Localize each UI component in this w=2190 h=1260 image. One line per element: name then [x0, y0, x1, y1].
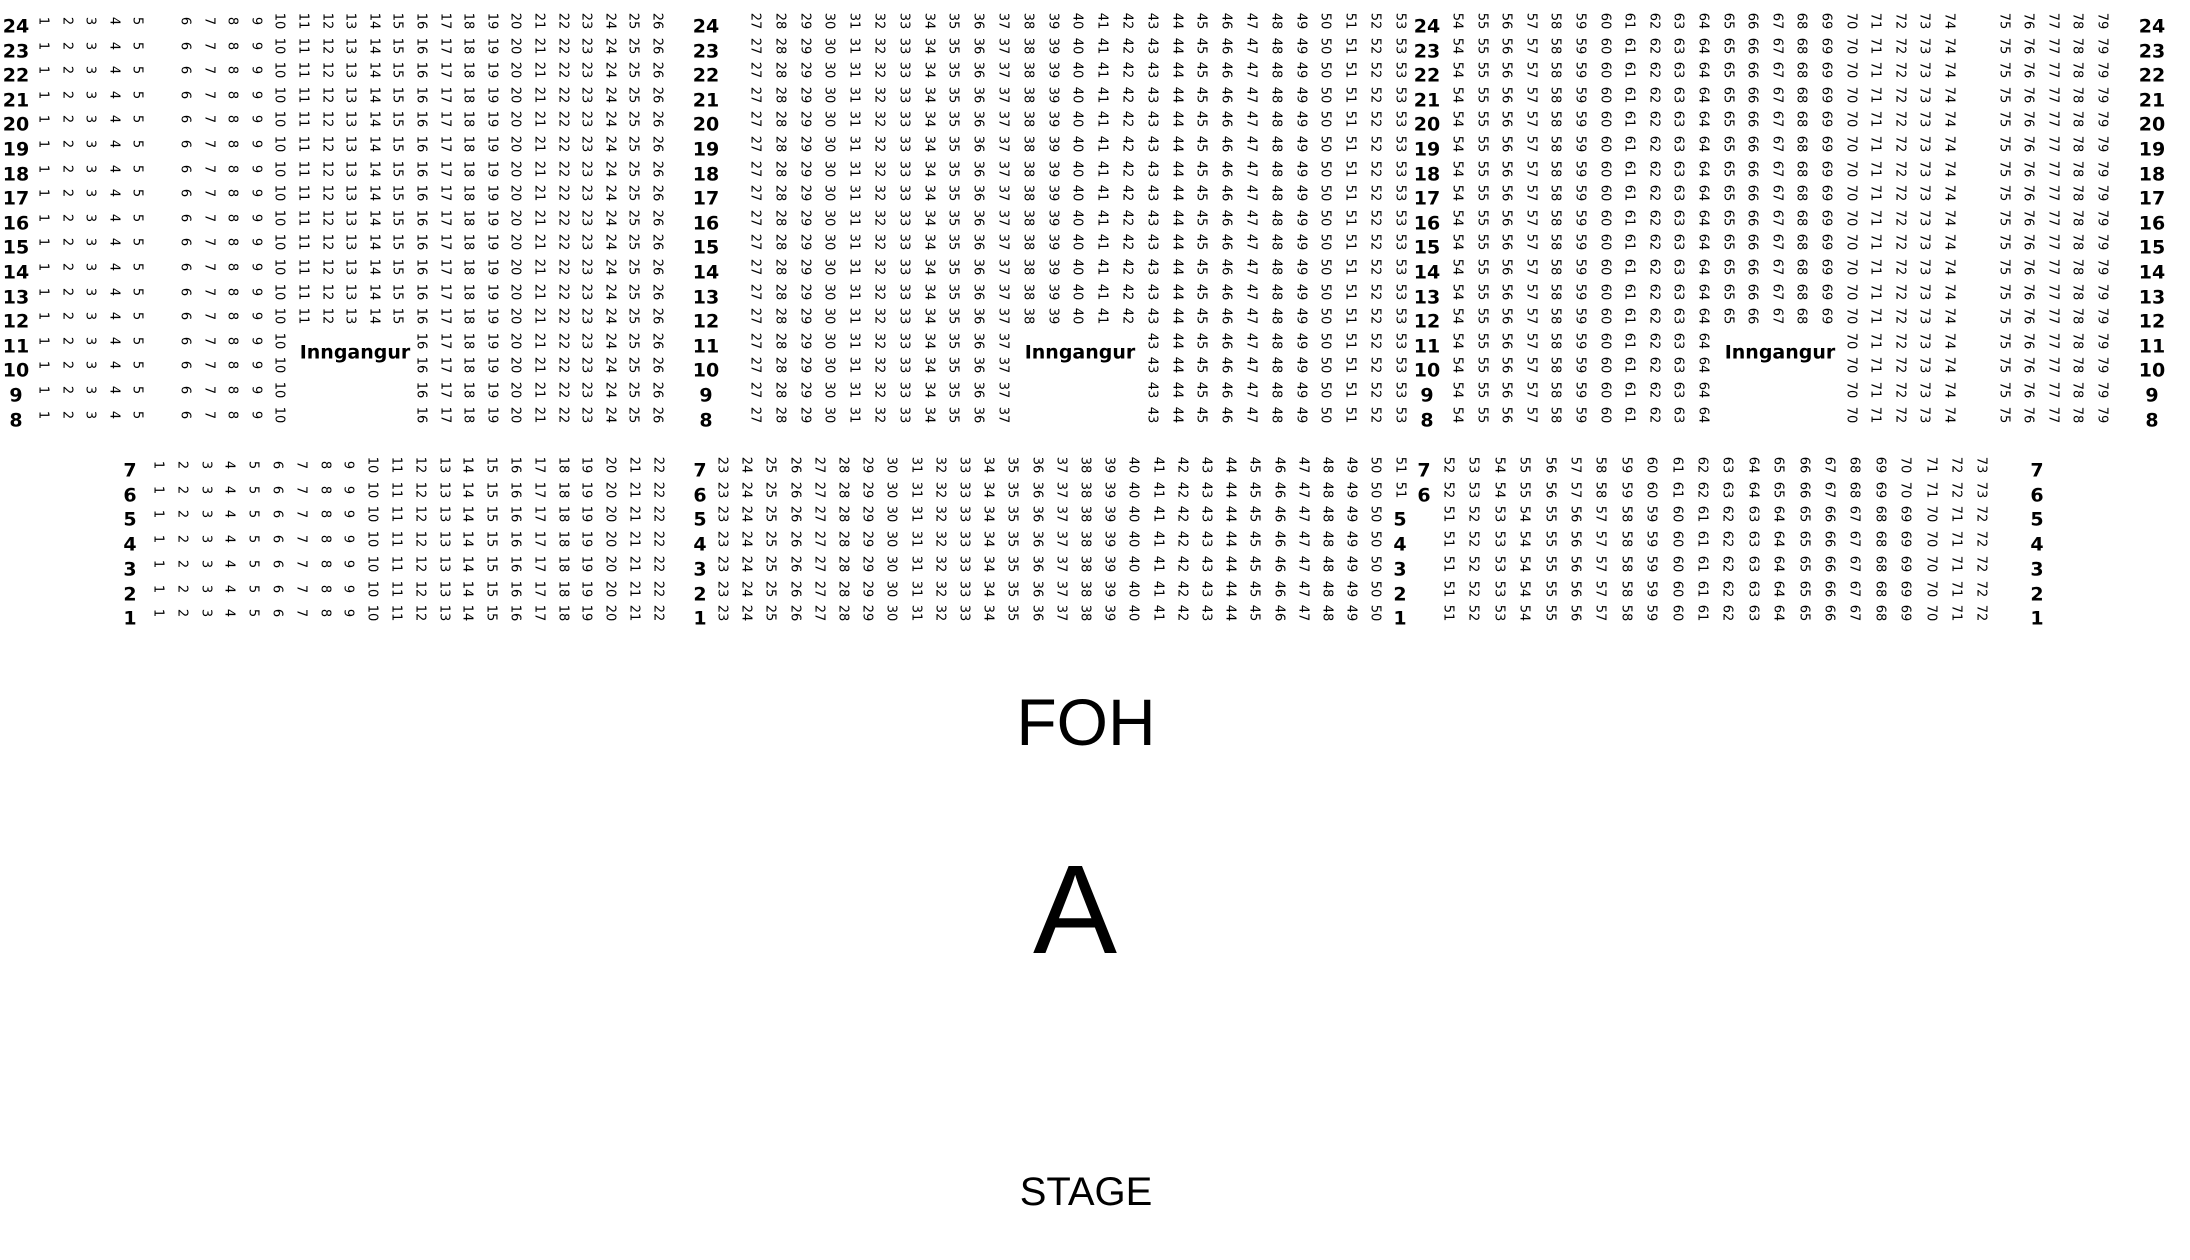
seat-number: 40: [1071, 308, 1084, 325]
seat-number: 22: [556, 111, 569, 128]
seat-number: 66: [1746, 185, 1759, 202]
seat-number: 60: [1598, 283, 1611, 300]
row-label: 24: [3, 18, 29, 37]
seat-number: 19: [485, 259, 498, 276]
seat-number: 24: [740, 457, 753, 474]
seat-number: 48: [1321, 506, 1334, 523]
seat-number: 49: [1345, 481, 1358, 498]
seat-number: 52: [1369, 13, 1382, 30]
seat-number: 55: [1518, 481, 1531, 498]
row-label: 7: [2030, 462, 2043, 481]
seat-number: 11: [390, 481, 403, 498]
row-label: 10: [693, 362, 719, 381]
seat-number: 1: [37, 17, 50, 25]
seat-number: 4: [107, 214, 120, 222]
seat-number: 64: [1697, 308, 1710, 325]
seat-number: 4: [223, 486, 236, 494]
seat-number: 78: [2071, 357, 2084, 374]
seat-number: 32: [873, 62, 886, 79]
seat-number: 24: [603, 111, 616, 128]
seat-number: 23: [580, 406, 593, 423]
seat-number: 33: [897, 87, 910, 104]
seat-number: 30: [885, 556, 898, 573]
seat-number: 52: [1467, 506, 1480, 523]
seat-number: 30: [823, 185, 836, 202]
seat-number: 62: [1721, 580, 1734, 597]
seat-number: 19: [485, 283, 498, 300]
seat-number: 13: [344, 37, 357, 54]
seat-number: 73: [1918, 13, 1931, 30]
seat-number: 36: [972, 259, 985, 276]
row-label: 3: [2030, 560, 2043, 579]
seat-number: 13: [437, 605, 450, 622]
seat-number: 24: [603, 234, 616, 251]
seat-number: 72: [1950, 481, 1963, 498]
seat-number: 24: [603, 283, 616, 300]
seat-number: 12: [320, 136, 333, 153]
seat-number: 1: [37, 312, 50, 320]
seat-number: 65: [1721, 308, 1734, 325]
seat-number: 63: [1672, 382, 1685, 399]
seat-number: 5: [131, 189, 144, 197]
seat-number: 32: [873, 234, 886, 251]
seat-number: 1: [152, 535, 165, 543]
seat-number: 55: [1475, 406, 1488, 423]
seat-number: 45: [1195, 160, 1208, 177]
seat-number: 35: [947, 333, 960, 350]
seat-number: 3: [84, 386, 97, 394]
seat-number: 49: [1294, 185, 1307, 202]
seat-number: 44: [1170, 357, 1183, 374]
seat-number: 48: [1269, 308, 1282, 325]
seat-number: 79: [2096, 111, 2109, 128]
seat-number: 13: [437, 457, 450, 474]
seat-number: 48: [1269, 62, 1282, 79]
seat-number: 43: [1145, 382, 1158, 399]
seat-number: 29: [861, 457, 874, 474]
seat-number: 39: [1103, 481, 1116, 498]
seat-number: 68: [1795, 136, 1808, 153]
seat-number: 33: [958, 457, 971, 474]
seat-number: 72: [1893, 406, 1906, 423]
seat-number: 64: [1772, 556, 1785, 573]
seat-number: 62: [1647, 308, 1660, 325]
seat-number: 58: [1549, 13, 1562, 30]
seat-number: 75: [1997, 357, 2010, 374]
seat-number: 48: [1321, 580, 1334, 597]
seat-number: 64: [1697, 185, 1710, 202]
seat-number: 25: [627, 259, 640, 276]
seat-number: 10: [273, 111, 286, 128]
seat-number: 48: [1269, 210, 1282, 227]
seat-number: 2: [60, 238, 73, 246]
seat-number: 33: [897, 160, 910, 177]
seat-number: 15: [391, 210, 404, 227]
seat-number: 45: [1195, 62, 1208, 79]
seat-number: 11: [297, 185, 310, 202]
seat-number: 58: [1549, 136, 1562, 153]
seat-number: 56: [1500, 210, 1513, 227]
seat-number: 19: [485, 406, 498, 423]
seat-number: 48: [1269, 406, 1282, 423]
row-label: 21: [1414, 91, 1440, 110]
seat-number: 10: [273, 13, 286, 30]
row-label: 13: [1414, 288, 1440, 307]
seat-number: 1: [37, 263, 50, 271]
seat-number: 36: [1030, 556, 1043, 573]
row-label: 20: [1414, 116, 1440, 135]
seat-number: 16: [509, 506, 522, 523]
row-label: 14: [3, 264, 29, 283]
seat-number: 26: [651, 382, 664, 399]
seat-number: 9: [249, 17, 262, 25]
seat-number: 68: [1873, 506, 1886, 523]
seat-number: 64: [1772, 605, 1785, 622]
seat-number: 48: [1269, 283, 1282, 300]
seat-number: 23: [580, 160, 593, 177]
seat-number: 58: [1549, 259, 1562, 276]
seat-number: 38: [1079, 556, 1092, 573]
seat-number: 21: [533, 62, 546, 79]
seat-number: 8: [226, 115, 239, 123]
seat-number: 40: [1071, 283, 1084, 300]
seat-number: 69: [1820, 62, 1833, 79]
seat-number: 5: [247, 584, 260, 592]
row-label: 12: [693, 313, 719, 332]
seat-number: 18: [556, 556, 569, 573]
seat-number: 42: [1121, 62, 1134, 79]
seat-number: 44: [1170, 62, 1183, 79]
seat-number: 73: [1918, 234, 1931, 251]
seat-number: 51: [1344, 333, 1357, 350]
row-label: 1: [123, 610, 136, 629]
seat-number: 57: [1524, 13, 1537, 30]
seat-number: 47: [1245, 333, 1258, 350]
seat-number: 40: [1127, 531, 1140, 548]
seat-number: 5: [131, 41, 144, 49]
row-label: 8: [699, 411, 712, 430]
seat-number: 59: [1574, 160, 1587, 177]
seat-number: 70: [1924, 605, 1937, 622]
seat-number: 56: [1500, 259, 1513, 276]
seat-number: 35: [947, 308, 960, 325]
seat-number: 42: [1121, 87, 1134, 104]
seat-number: 56: [1500, 13, 1513, 30]
seat-number: 43: [1145, 357, 1158, 374]
seat-number: 66: [1746, 37, 1759, 54]
seat-number: 72: [1893, 259, 1906, 276]
seat-number: 9: [342, 560, 355, 568]
seat-number: 73: [1975, 457, 1988, 474]
seat-number: 24: [603, 160, 616, 177]
seat-number: 38: [1021, 13, 1034, 30]
seat-number: 61: [1670, 457, 1683, 474]
seat-number: 18: [462, 406, 475, 423]
seat-number: 46: [1220, 136, 1233, 153]
seat-number: 22: [556, 87, 569, 104]
seat-number: 9: [249, 287, 262, 295]
seat-number: 41: [1096, 37, 1109, 54]
seat-number: 32: [873, 87, 886, 104]
seat-number: 61: [1623, 333, 1636, 350]
seat-number: 17: [438, 308, 451, 325]
seat-number: 22: [651, 556, 664, 573]
seat-number: 61: [1696, 506, 1709, 523]
seat-number: 22: [556, 283, 569, 300]
seat-number: 28: [773, 13, 786, 30]
seat-number: 3: [84, 91, 97, 99]
seat-number: 20: [509, 87, 522, 104]
seat-number: 19: [485, 62, 498, 79]
seat-number: 8: [226, 41, 239, 49]
seat-number: 1: [37, 164, 50, 172]
seat-number: 56: [1500, 283, 1513, 300]
seat-number: 58: [1549, 308, 1562, 325]
seat-number: 61: [1623, 259, 1636, 276]
seat-number: 71: [1869, 234, 1882, 251]
seat-number: 25: [627, 333, 640, 350]
seat-number: 77: [2046, 357, 2059, 374]
seat-number: 56: [1500, 357, 1513, 374]
seat-number: 17: [532, 481, 545, 498]
seat-number: 51: [1344, 185, 1357, 202]
seat-number: 59: [1574, 406, 1587, 423]
seat-number: 55: [1475, 357, 1488, 374]
seat-number: 58: [1549, 210, 1562, 227]
seat-number: 52: [1369, 111, 1382, 128]
seat-number: 19: [580, 481, 593, 498]
seat-number: 1: [152, 584, 165, 592]
seat-number: 40: [1071, 111, 1084, 128]
seat-number: 11: [297, 37, 310, 54]
seat-number: 23: [580, 111, 593, 128]
seat-number: 43: [1145, 13, 1158, 30]
seat-number: 24: [603, 37, 616, 54]
seat-number: 34: [922, 185, 935, 202]
seat-number: 2: [60, 263, 73, 271]
seat-number: 57: [1524, 357, 1537, 374]
seat-number: 50: [1319, 333, 1332, 350]
seat-number: 29: [798, 87, 811, 104]
seat-number: 45: [1248, 457, 1261, 474]
seat-number: 29: [798, 333, 811, 350]
seat-number: 76: [2022, 160, 2035, 177]
seat-number: 32: [933, 481, 946, 498]
seat-number: 53: [1393, 136, 1406, 153]
seat-number: 7: [202, 66, 215, 74]
seat-number: 25: [764, 580, 777, 597]
seat-number: 56: [1569, 556, 1582, 573]
seat-number: 36: [972, 62, 985, 79]
seat-number: 34: [982, 506, 995, 523]
seat-number: 28: [837, 556, 850, 573]
seat-number: 32: [873, 160, 886, 177]
seat-number: 53: [1492, 580, 1505, 597]
seat-number: 7: [294, 510, 307, 518]
seat-number: 22: [651, 481, 664, 498]
seat-number: 40: [1127, 506, 1140, 523]
seat-number: 20: [509, 406, 522, 423]
seat-number: 14: [461, 580, 474, 597]
seat-number: 50: [1319, 37, 1332, 54]
row-label: 18: [1414, 165, 1440, 184]
seat-number: 67: [1770, 136, 1783, 153]
seat-number: 43: [1145, 259, 1158, 276]
seat-number: 53: [1393, 234, 1406, 251]
seat-number: 19: [580, 457, 593, 474]
seat-number: 69: [1820, 111, 1833, 128]
seat-number: 30: [823, 62, 836, 79]
seat-number: 73: [1918, 406, 1931, 423]
seat-number: 22: [651, 506, 664, 523]
seat-number: 47: [1245, 210, 1258, 227]
seat-number: 49: [1345, 457, 1358, 474]
seat-number: 74: [1943, 62, 1956, 79]
seat-number: 28: [773, 259, 786, 276]
seat-number: 17: [532, 580, 545, 597]
seat-number: 48: [1269, 37, 1282, 54]
seat-number: 11: [297, 160, 310, 177]
seat-number: 43: [1200, 605, 1213, 622]
seat-number: 39: [1046, 185, 1059, 202]
seat-number: 32: [873, 111, 886, 128]
seat-number: 6: [179, 115, 192, 123]
seat-number: 63: [1746, 556, 1759, 573]
row-label: 6: [123, 486, 136, 505]
seat-number: 24: [740, 605, 753, 622]
seat-number: 9: [249, 386, 262, 394]
seat-number: 17: [438, 259, 451, 276]
seat-number: 31: [848, 210, 861, 227]
seat-number: 57: [1524, 382, 1537, 399]
row-label: 23: [2139, 42, 2165, 61]
seat-number: 17: [438, 185, 451, 202]
seat-number: 39: [1046, 259, 1059, 276]
seat-number: 28: [837, 531, 850, 548]
seat-number: 22: [556, 62, 569, 79]
seat-number: 12: [320, 234, 333, 251]
seat-number: 21: [628, 605, 641, 622]
seat-number: 66: [1746, 210, 1759, 227]
seat-number: 4: [223, 510, 236, 518]
seat-number: 57: [1524, 210, 1537, 227]
seat-number: 61: [1623, 210, 1636, 227]
seat-number: 49: [1294, 259, 1307, 276]
seat-number: 26: [651, 210, 664, 227]
seat-number: 59: [1574, 283, 1587, 300]
seat-number: 63: [1672, 87, 1685, 104]
seat-number: 29: [798, 13, 811, 30]
seat-number: 39: [1103, 580, 1116, 597]
seat-number: 17: [438, 382, 451, 399]
seat-number: 23: [580, 62, 593, 79]
seat-number: 62: [1647, 406, 1660, 423]
seat-number: 63: [1672, 308, 1685, 325]
seat-number: 22: [556, 406, 569, 423]
seat-number: 12: [320, 210, 333, 227]
seat-number: 24: [603, 87, 616, 104]
seat-number: 43: [1200, 506, 1213, 523]
seat-number: 68: [1795, 37, 1808, 54]
seat-number: 30: [823, 308, 836, 325]
seat-number: 6: [179, 17, 192, 25]
seat-number: 56: [1500, 234, 1513, 251]
seat-number: 67: [1848, 506, 1861, 523]
seat-number: 51: [1344, 37, 1357, 54]
seat-number: 21: [628, 531, 641, 548]
seat-number: 22: [556, 136, 569, 153]
seat-number: 9: [249, 312, 262, 320]
seat-number: 77: [2046, 234, 2059, 251]
seat-number: 35: [1006, 457, 1019, 474]
seat-number: 67: [1770, 308, 1783, 325]
seat-number: 34: [982, 531, 995, 548]
seat-number: 45: [1195, 210, 1208, 227]
seat-number: 52: [1369, 382, 1382, 399]
seat-number: 12: [320, 87, 333, 104]
seat-number: 56: [1500, 382, 1513, 399]
seat-number: 22: [556, 234, 569, 251]
seat-number: 70: [1844, 37, 1857, 54]
seat-number: 79: [2096, 259, 2109, 276]
seat-number: 64: [1697, 259, 1710, 276]
seat-number: 1: [152, 560, 165, 568]
seat-number: 21: [533, 234, 546, 251]
seat-number: 62: [1647, 283, 1660, 300]
seat-number: 34: [922, 234, 935, 251]
seat-number: 69: [1820, 13, 1833, 30]
seat-number: 32: [873, 357, 886, 374]
seat-number: 13: [344, 111, 357, 128]
seat-number: 14: [367, 259, 380, 276]
seat-number: 7: [202, 312, 215, 320]
seat-number: 4: [223, 560, 236, 568]
seat-number: 26: [788, 556, 801, 573]
seat-number: 76: [2022, 283, 2035, 300]
seat-number: 34: [922, 259, 935, 276]
seat-number: 29: [861, 605, 874, 622]
seat-number: 40: [1071, 87, 1084, 104]
seat-number: 2: [175, 560, 188, 568]
seat-number: 47: [1296, 481, 1309, 498]
seat-number: 21: [533, 136, 546, 153]
seat-number: 66: [1823, 506, 1836, 523]
seat-number: 35: [947, 160, 960, 177]
seat-number: 56: [1569, 580, 1582, 597]
seat-number: 61: [1623, 234, 1636, 251]
seat-number: 34: [982, 556, 995, 573]
seat-number: 4: [107, 17, 120, 25]
seat-number: 72: [1893, 333, 1906, 350]
seat-number: 39: [1103, 556, 1116, 573]
seat-number: 68: [1873, 605, 1886, 622]
seat-number: 35: [947, 234, 960, 251]
seat-number: 8: [318, 535, 331, 543]
seat-number: 70: [1844, 136, 1857, 153]
seat-number: 29: [798, 283, 811, 300]
seat-number: 74: [1943, 87, 1956, 104]
seat-number: 53: [1393, 185, 1406, 202]
seat-number: 18: [462, 13, 475, 30]
seat-number: 62: [1647, 87, 1660, 104]
seat-number: 50: [1319, 308, 1332, 325]
seat-number: 61: [1696, 556, 1709, 573]
seat-number: 31: [909, 531, 922, 548]
seat-number: 7: [202, 410, 215, 418]
seat-number: 2: [60, 386, 73, 394]
seat-number: 23: [580, 185, 593, 202]
seat-number: 70: [1924, 531, 1937, 548]
